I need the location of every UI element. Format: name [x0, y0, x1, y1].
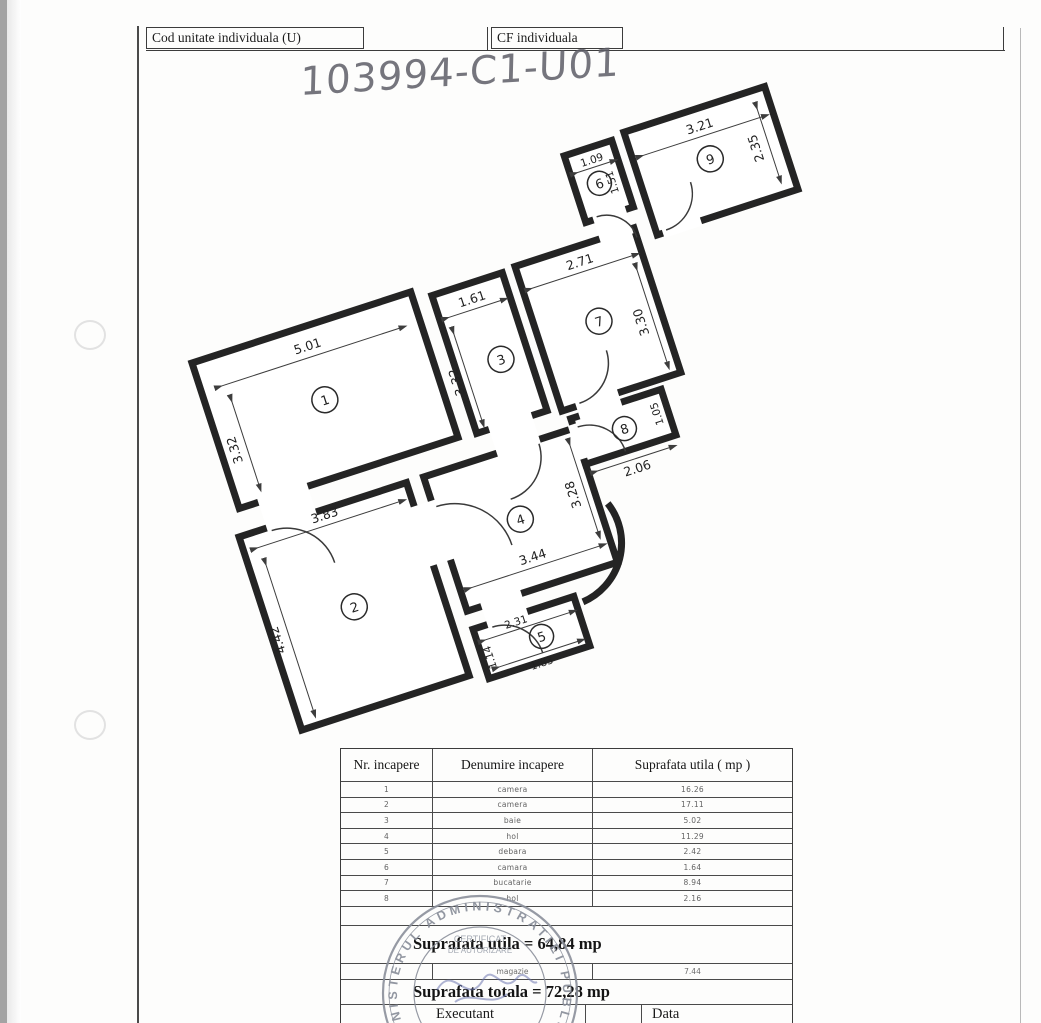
- svg-text:4: 4: [515, 512, 528, 529]
- door-arc-room6: [597, 207, 637, 247]
- door-gap: [575, 388, 623, 421]
- cell-name: baie: [433, 813, 593, 828]
- door-gap: [408, 499, 456, 567]
- cell-name: camara: [433, 860, 593, 875]
- table-row: 2 camera 17.11: [341, 797, 792, 813]
- cell-name: magazie: [433, 964, 593, 979]
- executant-label: Executant: [341, 1005, 586, 1023]
- room-9-outline: [624, 87, 798, 235]
- room-7-number: 7: [583, 305, 616, 338]
- door-arc-room2: [272, 515, 335, 578]
- room-7-outline: [515, 228, 681, 411]
- dim-label: 5.01: [292, 335, 323, 358]
- cell-area: 16.26: [593, 782, 792, 797]
- dim-label: 3.28: [561, 479, 584, 510]
- dim-label: 1.61: [456, 287, 487, 310]
- svg-text:3: 3: [495, 352, 508, 369]
- cell-nr: 1: [341, 782, 433, 797]
- room-5-number: 5: [526, 621, 556, 651]
- svg-text:6: 6: [594, 176, 607, 193]
- room-4-outline: [424, 428, 618, 611]
- dim-line: [453, 331, 483, 424]
- room-5-outline: [473, 596, 590, 678]
- cell-name: hol: [433, 829, 593, 844]
- dim-line: [265, 562, 314, 714]
- room-9-number: 9: [694, 142, 727, 175]
- dim-label: 3.30: [629, 307, 652, 338]
- room-8-number: 8: [609, 413, 639, 443]
- dim-label: 1.51: [603, 169, 622, 195]
- room-2-number: 2: [338, 590, 371, 623]
- dim-line: [756, 106, 780, 180]
- dim-label: 2.71: [564, 250, 595, 273]
- scan-edge-shadow: [7, 0, 21, 1023]
- header-tick-1: [487, 27, 488, 50]
- dim-label: 3.32: [223, 435, 246, 466]
- svg-text:7: 7: [593, 314, 606, 331]
- hole-punch-bottom: [74, 710, 106, 740]
- footer-empty-cell: [586, 1005, 642, 1023]
- cell-name: camera: [433, 782, 593, 797]
- hole-punch-top: [74, 320, 106, 350]
- cell-area: 8.94: [593, 876, 792, 891]
- cell-area: 7.44: [593, 964, 792, 979]
- svg-text:2: 2: [348, 600, 361, 617]
- cell-name: debara: [433, 844, 593, 859]
- dim-line: [569, 442, 599, 535]
- dim-label: 1.83: [529, 654, 555, 673]
- door-gap: [488, 411, 542, 458]
- svg-text:9: 9: [704, 152, 717, 169]
- room-3-outline: [432, 273, 547, 434]
- table-footer-row: Executant Data: [341, 1004, 792, 1023]
- room-4-number: 4: [504, 503, 537, 536]
- dim-label: 3.44: [517, 545, 548, 568]
- dim-line: [231, 399, 260, 488]
- cell-nr: 3: [341, 813, 433, 828]
- cell-nr: 6: [341, 860, 433, 875]
- document-border-left: [137, 26, 139, 1023]
- room-8-outline: [571, 389, 676, 464]
- svg-text:5: 5: [536, 629, 549, 646]
- dim-line: [640, 116, 766, 157]
- svg-text:8: 8: [619, 422, 632, 439]
- cell-nr: [341, 964, 433, 979]
- dim-line: [636, 267, 668, 366]
- cell-area: 5.02: [593, 813, 792, 828]
- dim-label: 2.06: [622, 457, 653, 480]
- table-header-row: Nr. incapere Denumire incapere Suprafata…: [341, 749, 792, 781]
- cell-nr: 5: [341, 844, 433, 859]
- subtotal-utila: Suprafata utila = 64,84 mp: [341, 925, 792, 963]
- dim-label: 2.35: [744, 133, 767, 164]
- table-row: 1 camera 16.26: [341, 781, 792, 797]
- table-row: 8 hol 2.16: [341, 890, 792, 906]
- col-header-suprafata: Suprafata utila ( mp ): [593, 749, 792, 781]
- cell-name: bucatarie: [433, 876, 593, 891]
- dim-label: 1.14: [481, 644, 500, 670]
- dim-line: [496, 640, 582, 668]
- col-header-denumire: Denumire incapere: [433, 749, 593, 781]
- total-totala: Suprafata totala = 72,28 mp: [341, 979, 792, 1004]
- cell-area: 1.64: [593, 860, 792, 875]
- dim-label: 2.31: [503, 613, 529, 632]
- svg-text:1: 1: [319, 393, 332, 410]
- header-tick-2: [1003, 27, 1004, 50]
- dim-label: 3.32: [445, 367, 468, 398]
- cell-area: 17.11: [593, 798, 792, 813]
- cell-area: 11.29: [593, 829, 792, 844]
- door-arc-room8: [578, 415, 626, 463]
- cell-area: 2.16: [593, 891, 792, 906]
- dim-line: [446, 299, 505, 318]
- cell-nr: 2: [341, 798, 433, 813]
- cell-name: hol: [433, 891, 593, 906]
- dim-label: 3.83: [309, 504, 340, 527]
- room-3-number: 3: [485, 343, 518, 376]
- cell-nr: 7: [341, 876, 433, 891]
- curved-entrance-wall: [556, 502, 638, 602]
- door-gap: [592, 205, 634, 244]
- room-1-number: 1: [308, 383, 341, 416]
- dim-label: 1.05: [648, 401, 667, 427]
- room-2-outline: [239, 483, 469, 730]
- cell-nr: 8: [341, 891, 433, 906]
- dim-line: [574, 161, 614, 174]
- dim-line: [529, 254, 636, 289]
- door-gap: [477, 579, 529, 629]
- door-arc-room3: [497, 444, 552, 499]
- room-6-outline: [564, 140, 633, 222]
- dim-label: 4.42: [266, 625, 289, 656]
- cell-name: camera: [433, 798, 593, 813]
- table-row: 4 hol 11.29: [341, 828, 792, 844]
- table-row: 6 camara 1.64: [341, 859, 792, 875]
- table-row-magazie: magazie 7.44: [341, 963, 792, 979]
- door-gap: [257, 482, 318, 533]
- dim-label: 1.09: [579, 151, 605, 170]
- room-6-number: 6: [584, 168, 614, 198]
- scan-edge-right: [1020, 28, 1021, 1023]
- dim-label: 3.21: [684, 115, 715, 138]
- field-cod-unitate-label: Cod unitate individuala (U): [146, 27, 364, 49]
- dim-line: [468, 545, 603, 589]
- door-arc-room9: [654, 182, 702, 230]
- dim-line: [254, 501, 402, 549]
- floor-plan-drawing: 5.01 3.32 3.83 4.42 1.61 3.32 3.44 3.28 …: [135, 50, 865, 780]
- door-arc-room4-left: [436, 488, 512, 564]
- room-area-table: Nr. incapere Denumire incapere Suprafata…: [340, 748, 793, 1023]
- room-1-outline: [192, 292, 458, 509]
- scan-edge-left: [0, 0, 7, 1023]
- table-spacer-row: [341, 906, 792, 925]
- door-arc-room7: [566, 350, 619, 403]
- data-label: Data: [642, 1005, 792, 1023]
- table-row: 3 baie 5.02: [341, 812, 792, 828]
- cell-area: 2.42: [593, 844, 792, 859]
- door-gap: [568, 423, 589, 460]
- cell-nr: 4: [341, 829, 433, 844]
- handwritten-unit-code: 103994-C1-U01: [300, 44, 561, 105]
- dim-line: [482, 611, 573, 641]
- dim-line: [594, 446, 673, 472]
- table-row: 7 bucatarie 8.94: [341, 875, 792, 891]
- door-arc-room5: [492, 615, 542, 665]
- col-header-nr: Nr. incapere: [341, 749, 433, 781]
- dim-line: [219, 327, 404, 387]
- table-row: 5 debara 2.42: [341, 843, 792, 859]
- door-gap: [661, 216, 702, 238]
- scanned-document-page: Cod unitate individuala (U) CF individua…: [0, 0, 1041, 1023]
